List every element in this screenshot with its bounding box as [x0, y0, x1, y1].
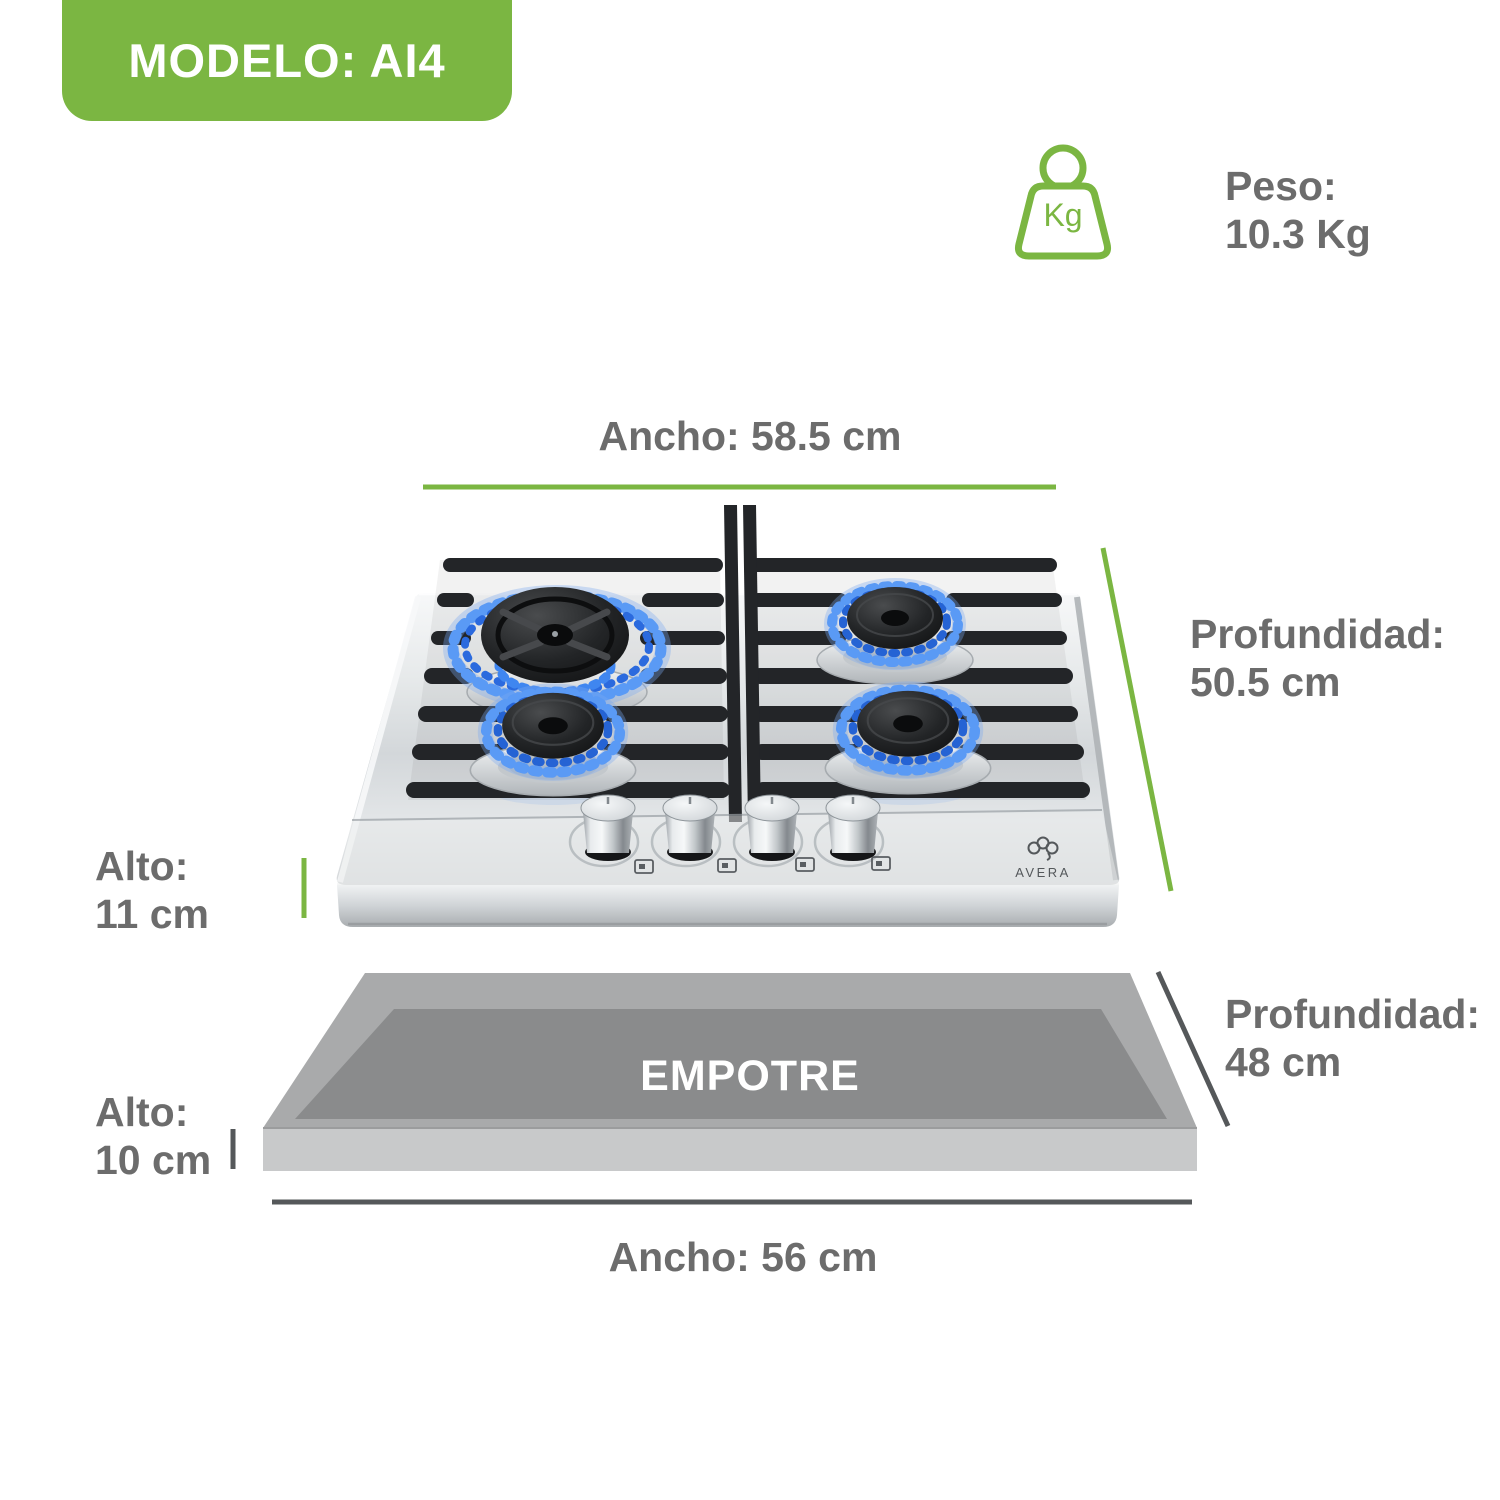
cooktop-height-label: Alto: 11 cm — [95, 842, 209, 938]
weight-label: Peso: 10.3 Kg — [1225, 162, 1371, 258]
cutout-height-label: Alto: 10 cm — [95, 1088, 211, 1184]
product-infographic: AVERA Kg MODELO: AI4 Peso — [0, 0, 1500, 1500]
cutout-front-face — [263, 1128, 1197, 1171]
weight-title: Peso: — [1225, 162, 1371, 210]
cutout-width-label: Ancho: 56 cm — [443, 1233, 1043, 1281]
weight-kg-icon: Kg — [1018, 148, 1107, 256]
cooktop-depth-value: 50.5 cm — [1190, 658, 1445, 706]
cooktop-front-apron — [337, 885, 1119, 927]
cooktop-width-label: Ancho: 58.5 cm — [450, 412, 1050, 460]
burner-front-right — [825, 689, 990, 794]
burner-back-right — [817, 585, 973, 684]
burner-front-left — [470, 691, 635, 796]
model-badge: MODELO: AI4 — [62, 0, 512, 121]
cutout-depth-label: Profundidad: 48 cm — [1225, 990, 1480, 1086]
brand-text: AVERA — [1015, 865, 1071, 880]
cutout-label: EMPOTRE — [450, 1052, 1050, 1100]
cooktop-depth-label: Profundidad: 50.5 cm — [1190, 610, 1445, 706]
cutout-height-title: Alto: — [95, 1088, 211, 1136]
cooktop-height-value: 11 cm — [95, 890, 209, 938]
model-badge-label: MODELO: AI4 — [128, 33, 445, 88]
cutout-height-value: 10 cm — [95, 1136, 211, 1184]
weight-unit-label: Kg — [1043, 197, 1082, 233]
cooktop-height-title: Alto: — [95, 842, 209, 890]
gas-cooktop-illustration: AVERA — [337, 505, 1120, 927]
weight-value: 10.3 Kg — [1225, 210, 1371, 258]
cutout-depth-value: 48 cm — [1225, 1038, 1480, 1086]
cooktop-depth-title: Profundidad: — [1190, 610, 1445, 658]
cutout-depth-title: Profundidad: — [1225, 990, 1480, 1038]
